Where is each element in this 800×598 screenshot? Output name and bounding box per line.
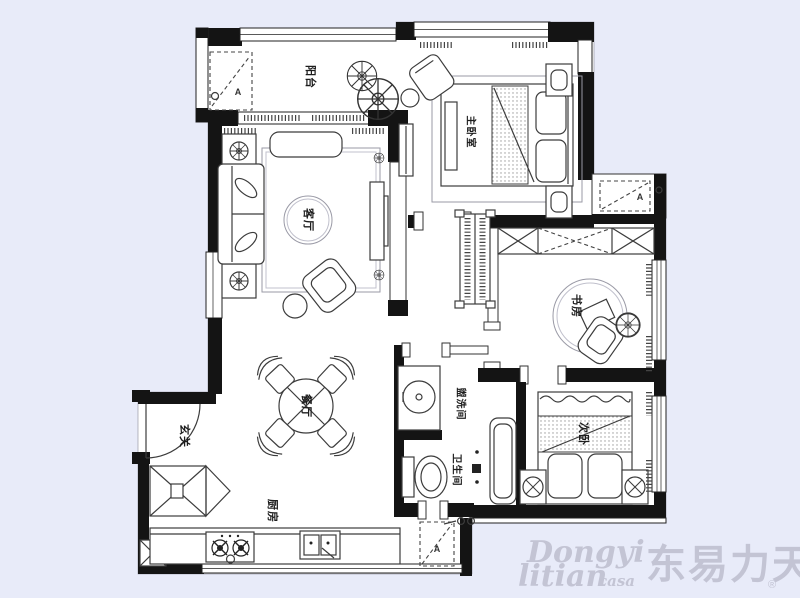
nightstand	[622, 470, 648, 504]
nightstand	[546, 186, 572, 218]
watermark-registered-icon: ®	[768, 579, 776, 591]
console-bench	[270, 132, 342, 157]
balcony-label: 阳台	[304, 65, 318, 89]
brand-watermark: Dongyi litian casa 东易力天 ®	[518, 535, 800, 594]
bed-bench	[445, 102, 457, 170]
bathtub	[490, 418, 516, 504]
ac-unit-label: A	[235, 87, 242, 97]
small-round-table	[401, 89, 419, 107]
entry-label: 玄关	[178, 424, 192, 448]
nightstand	[546, 64, 572, 96]
second-bed	[538, 392, 632, 504]
living-room-label: 客厅	[302, 207, 316, 232]
watermark-en-suffix: casa	[598, 572, 635, 590]
floorplan-drawing: A 阳台	[0, 0, 800, 598]
wardrobe	[498, 228, 654, 254]
plant-table	[616, 313, 640, 337]
second-bedroom: 次卧	[520, 392, 649, 504]
toilet	[402, 456, 447, 498]
washroom-label: 盥洗间	[455, 388, 468, 421]
second-bedroom-label: 次卧	[577, 422, 591, 446]
wall-fixture	[472, 464, 481, 473]
watermark-cn: 东易力天	[646, 543, 800, 587]
kitchen-label: 厨房	[266, 499, 280, 523]
sink	[300, 531, 340, 559]
study-label: 书房	[570, 294, 584, 318]
sofa	[218, 164, 264, 264]
ac-unit-label: A	[434, 544, 441, 554]
bookshelf	[455, 210, 495, 308]
stove	[206, 532, 254, 563]
nightstand	[520, 470, 546, 504]
side-round-table	[283, 294, 307, 318]
side-table-lamp	[222, 134, 256, 168]
floorplan-page: A 阳台	[0, 0, 800, 598]
watermark-en-line2: litian	[518, 559, 607, 594]
dresser	[399, 124, 413, 176]
bathroom-label: 卫生间	[451, 454, 464, 487]
washbasin	[398, 366, 440, 430]
ac-unit-label: A	[637, 192, 644, 202]
master-bed	[441, 84, 573, 186]
dining-room-label: 餐厅	[300, 393, 314, 418]
master-bedroom-label: 主卧室	[465, 116, 478, 149]
side-table-lamp	[222, 264, 256, 298]
